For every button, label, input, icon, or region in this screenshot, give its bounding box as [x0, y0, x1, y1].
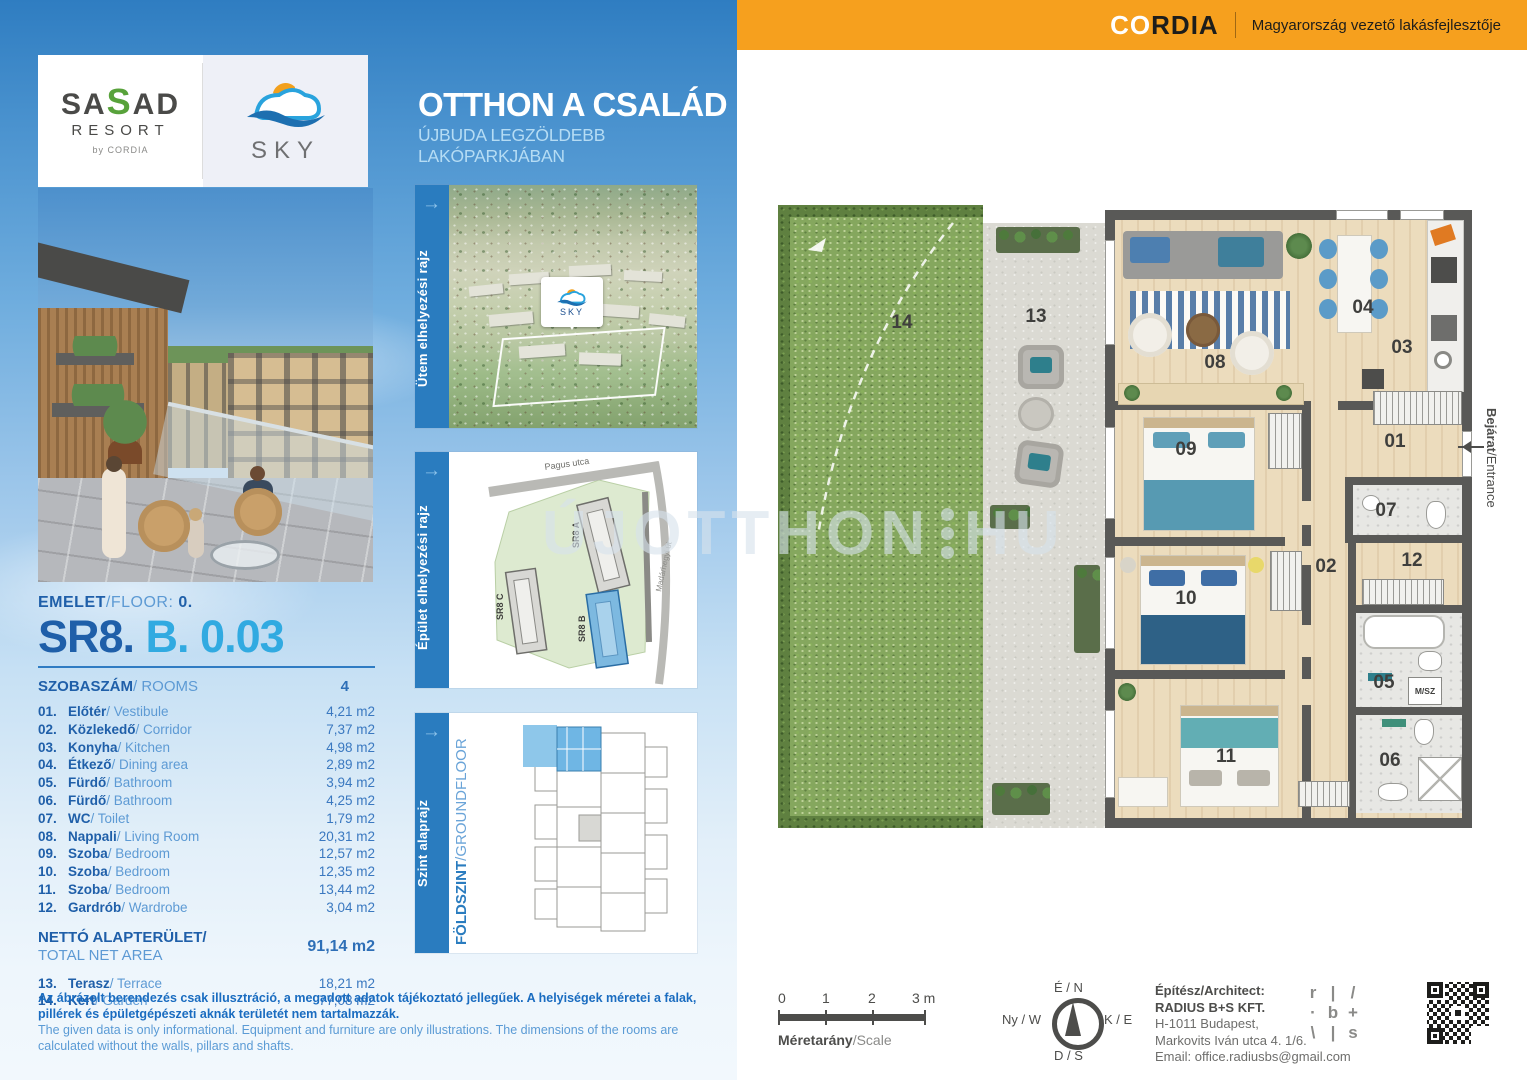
hero-coffee-table — [210, 540, 280, 570]
cordia-infinity-glyph: CO — [1110, 10, 1151, 40]
thumbnail-site-phase: → Ütem elhelyezési rajz SKY — [415, 185, 697, 428]
rooms-header: SZOBASZÁM/ ROOMS4 — [38, 678, 375, 695]
wardrobe-closet — [1362, 579, 1444, 605]
plan-label-bedroom-10: 10 — [1175, 588, 1196, 610]
room-row: 07.WC/ Toilet1,79 m2 — [38, 810, 375, 828]
sky-cloud-icon — [555, 287, 589, 309]
entrance-door — [1462, 431, 1472, 477]
aerial-photo: SKY — [449, 185, 697, 428]
sky-map-marker: SKY — [541, 277, 603, 327]
stove — [1431, 257, 1457, 283]
hero-figure-child-head — [189, 508, 202, 521]
compass: É / N Ny / W K / E D / S — [1008, 982, 1138, 1068]
bathtub — [1363, 615, 1445, 649]
entry-closet — [1373, 391, 1462, 425]
rbs-logo: r|/ ·b+ \|s — [1303, 983, 1363, 1043]
header-separator — [1235, 12, 1236, 38]
towel — [1382, 719, 1406, 727]
desk — [1118, 777, 1168, 807]
compass-south: D / S — [1054, 1048, 1083, 1063]
compass-needle-icon — [1065, 1002, 1081, 1036]
sink — [1378, 783, 1408, 801]
wall — [1302, 401, 1311, 501]
sky-cloud-icon — [243, 77, 329, 135]
room-row: 08.Nappali/ Living Room20,31 m2 — [38, 828, 375, 846]
building-label-c: SR8 C — [495, 593, 505, 620]
washer-dryer: M/SZ — [1408, 677, 1442, 705]
wall — [1115, 670, 1285, 679]
dining-chair — [1319, 269, 1337, 289]
plan-label-garden: 14 — [891, 312, 912, 334]
street-label-top: Pagus utca — [544, 456, 590, 472]
disclaimer-en: The given data is only informational. Eq… — [38, 1022, 700, 1054]
coffee-table — [1186, 313, 1220, 347]
aerial-building — [624, 270, 662, 282]
plant — [1118, 683, 1136, 701]
brochure-page: SASAD RESORT by CORDIA SKY — [0, 0, 1527, 1080]
room-row: 10.Szoba/ Bedroom12,35 m2 — [38, 863, 375, 881]
site-plan-drawing: Pagus utca SR8 A SR8 C SR8 B Madárhegyi … — [449, 452, 697, 688]
room-row: 06.Fürdő/ Bathroom4,25 m2 — [38, 792, 375, 810]
toilet — [1414, 719, 1434, 745]
terrace-planter — [1074, 565, 1100, 653]
oven — [1431, 315, 1457, 341]
unit-info: EMELET/FLOOR: 0. SR8. B. 0.03 SZOBASZÁM/… — [38, 594, 375, 1010]
wall — [1345, 535, 1462, 543]
window — [1336, 210, 1388, 220]
floor-key-drawing — [505, 717, 685, 945]
thumbnail-label: Ütem elhelyezési rajz — [415, 218, 449, 418]
dining-chair — [1370, 239, 1388, 259]
room-row: 05.Fürdő/ Bathroom3,94 m2 — [38, 774, 375, 792]
by-cordia-label: by CORDIA — [92, 145, 148, 155]
thumbnail-floor-key: → Szint alaprajz FÖLDSZINT/GROUNDFLOOR — [415, 713, 697, 953]
qr-code-image — [1425, 980, 1491, 1046]
hero-roof-edge — [38, 237, 189, 314]
architect-email: Email: office.radiusbs@gmail.com — [1155, 1049, 1351, 1066]
wall — [1348, 605, 1462, 613]
armchair-cream — [1230, 331, 1274, 375]
arrow-right-icon: → — [422, 193, 441, 215]
hero-rattan-chair — [234, 488, 282, 536]
sasad-resort-logo: SASAD RESORT by CORDIA — [38, 55, 203, 187]
wall — [1345, 477, 1462, 485]
page-subtitle: ÚJBUDA LEGZÖLDEBB LAKÓPARKJÁBAN — [418, 125, 728, 167]
net-area-row: NETTÓ ALAPTERÜLET/TOTAL NET AREA 91,14 m… — [38, 929, 375, 965]
watermark-dots — [941, 508, 954, 559]
plan-label-bedroom-11: 11 — [1216, 746, 1236, 768]
sink — [1418, 651, 1442, 671]
room-table: 01.Előtér/ Vestibule4,21 m2 02.Közlekedő… — [38, 703, 375, 917]
brand-header-bar: CORDIA Magyarország vezető lakásfejleszt… — [737, 0, 1527, 50]
bed-09 — [1143, 417, 1255, 531]
room-row: 03.Konyha/ Kitchen4,98 m2 — [38, 739, 375, 757]
watermark: ÚJOTTHON HU — [542, 498, 1066, 569]
wall — [1302, 525, 1311, 546]
plan-label-bath-06: 06 — [1379, 750, 1400, 772]
thumbnail-strip: → Ütem elhelyezési rajz — [415, 185, 449, 428]
plan-label-bath-05: 05 — [1373, 672, 1394, 694]
window — [1105, 557, 1115, 649]
scale-line — [778, 1010, 938, 1026]
hero-figure-man-head — [250, 466, 265, 481]
window — [1105, 427, 1115, 519]
divider-rule — [38, 666, 375, 668]
closet — [1268, 413, 1302, 469]
thumbnail-building-placement: → Épület elhelyezési rajz — [415, 452, 697, 688]
room-row: 12.Gardrób/ Wardrobe3,04 m2 — [38, 899, 375, 917]
unit-code: SR8. B. 0.03 — [38, 614, 375, 660]
bed-10 — [1140, 555, 1246, 665]
wall — [1348, 707, 1462, 715]
scale-label: Méretarány/Scale — [778, 1032, 938, 1048]
terrace-planter — [992, 783, 1050, 815]
nightstand — [1248, 557, 1264, 573]
compass-east: K / E — [1104, 1012, 1132, 1027]
glass-door — [1105, 240, 1115, 345]
room-row: 11.Szoba/ Bedroom13,44 m2 — [38, 881, 375, 899]
floor-key-sublabel: FÖLDSZINT/GROUNDFLOOR — [453, 715, 470, 945]
page-title-block: OTTHON A CSALÁD ÚJBUDA LEGZÖLDEBB LAKÓPA… — [418, 88, 728, 167]
floor-line: EMELET/FLOOR: 0. — [38, 594, 375, 612]
sky-marker-label: SKY — [560, 307, 584, 317]
scale-numbers: 0 1 2 3 m — [778, 990, 938, 1006]
closet — [1298, 781, 1350, 807]
disclaimer-hu: Az ábrázolt berendezés csak illusztráció… — [38, 990, 700, 1022]
net-area-value: 91,14 m2 — [307, 938, 375, 956]
wall — [1302, 657, 1311, 679]
leaf-s-glyph: S — [107, 81, 133, 122]
plan-label-wardrobe: 12 — [1401, 550, 1422, 572]
terrace-armchair — [1013, 439, 1065, 489]
plan-label-bedroom-09: 09 — [1175, 439, 1196, 461]
rooms-count: 4 — [341, 678, 375, 695]
resort-label: RESORT — [71, 122, 169, 139]
sasad-wordmark: SASAD — [61, 87, 180, 120]
page-title: OTTHON A CSALÁD — [418, 88, 728, 122]
hero-plant — [56, 336, 134, 356]
room-row: 02.Közlekedő/ Corridor7,37 m2 — [38, 721, 375, 739]
sky-logo: SKY — [203, 55, 368, 187]
dining-chair — [1319, 299, 1337, 319]
hero-plant — [94, 398, 156, 446]
compass-west: Ny / W — [1002, 1012, 1041, 1027]
coffee-machine — [1362, 369, 1384, 389]
sky-wordmark: SKY — [251, 137, 320, 165]
room-row: 09.Szoba/ Bedroom12,57 m2 — [38, 845, 375, 863]
hero-figure-woman-head — [106, 456, 122, 472]
wall — [1302, 565, 1311, 625]
arrow-right-icon: → — [422, 721, 441, 743]
plan-label-dining: 04 — [1352, 297, 1373, 319]
plan-label-terrace: 13 — [1025, 306, 1046, 328]
thumbnail-strip: → Szint alaprajz — [415, 713, 449, 953]
logo-card: SASAD RESORT by CORDIA SKY — [38, 55, 368, 187]
shower — [1418, 757, 1462, 801]
aerial-site-outline — [492, 327, 665, 407]
aerial-building — [569, 264, 612, 277]
closet — [1270, 551, 1302, 611]
window — [1105, 710, 1115, 798]
toilet — [1426, 501, 1446, 529]
hero-photo — [38, 188, 373, 582]
window — [1400, 210, 1444, 220]
disclaimer: Az ábrázolt berendezés csak illusztráció… — [38, 990, 700, 1054]
hero-figure-child — [188, 518, 204, 558]
compass-north: É / N — [1054, 980, 1083, 995]
terrace-planter — [996, 227, 1080, 253]
plant — [1286, 233, 1312, 259]
plan-label-vestibule: 01 — [1384, 431, 1405, 453]
nightstand — [1120, 557, 1136, 573]
plant — [1276, 385, 1292, 401]
hero-figure-woman — [102, 468, 126, 558]
plant — [1124, 385, 1140, 401]
cordia-logo: CORDIA — [1110, 10, 1219, 41]
plan-label-kitchen: 03 — [1391, 337, 1412, 359]
room-row: 01.Előtér/ Vestibule4,21 m2 — [38, 703, 375, 721]
plan-label-wc: 07 — [1375, 500, 1396, 522]
room-row: 04.Étkező/ Dining area2,89 m2 — [38, 756, 375, 774]
cordia-tagline: Magyarország vezető lakásfejlesztője — [1252, 17, 1501, 34]
site-plan-thumbnail: Pagus utca SR8 A SR8 C SR8 B Madárhegyi … — [449, 452, 697, 688]
building-label-b: SR8 B — [577, 615, 587, 642]
entrance-label: Bejárat/Entrance — [1484, 408, 1499, 508]
floor-key-thumbnail: FÖLDSZINT/GROUNDFLOOR — [449, 713, 697, 953]
sofa-pillow — [1218, 237, 1264, 267]
thumbnail-strip: → Épület elhelyezési rajz — [415, 452, 449, 688]
plan-label-living: 08 — [1204, 352, 1225, 374]
wall — [1115, 537, 1285, 546]
dining-chair — [1319, 239, 1337, 259]
thumbnail-label: Épület elhelyezési rajz — [415, 478, 449, 678]
entrance-arrow-icon — [1458, 446, 1484, 448]
qr-code — [1425, 980, 1491, 1046]
plan-label-corridor: 02 — [1315, 556, 1336, 578]
scale-bar: 0 1 2 3 m Méretarány/Scale — [778, 990, 938, 1048]
armchair-cream — [1128, 313, 1172, 357]
hero-rattan-chair — [138, 500, 190, 552]
kitchen-sink — [1434, 351, 1452, 369]
wall — [1345, 477, 1353, 543]
terrace-armchair — [1018, 345, 1064, 389]
thumbnail-label: Szint alaprajz — [415, 743, 449, 943]
terrace-table — [1018, 397, 1054, 431]
dining-chair — [1370, 269, 1388, 289]
sofa-pillow — [1130, 237, 1170, 263]
